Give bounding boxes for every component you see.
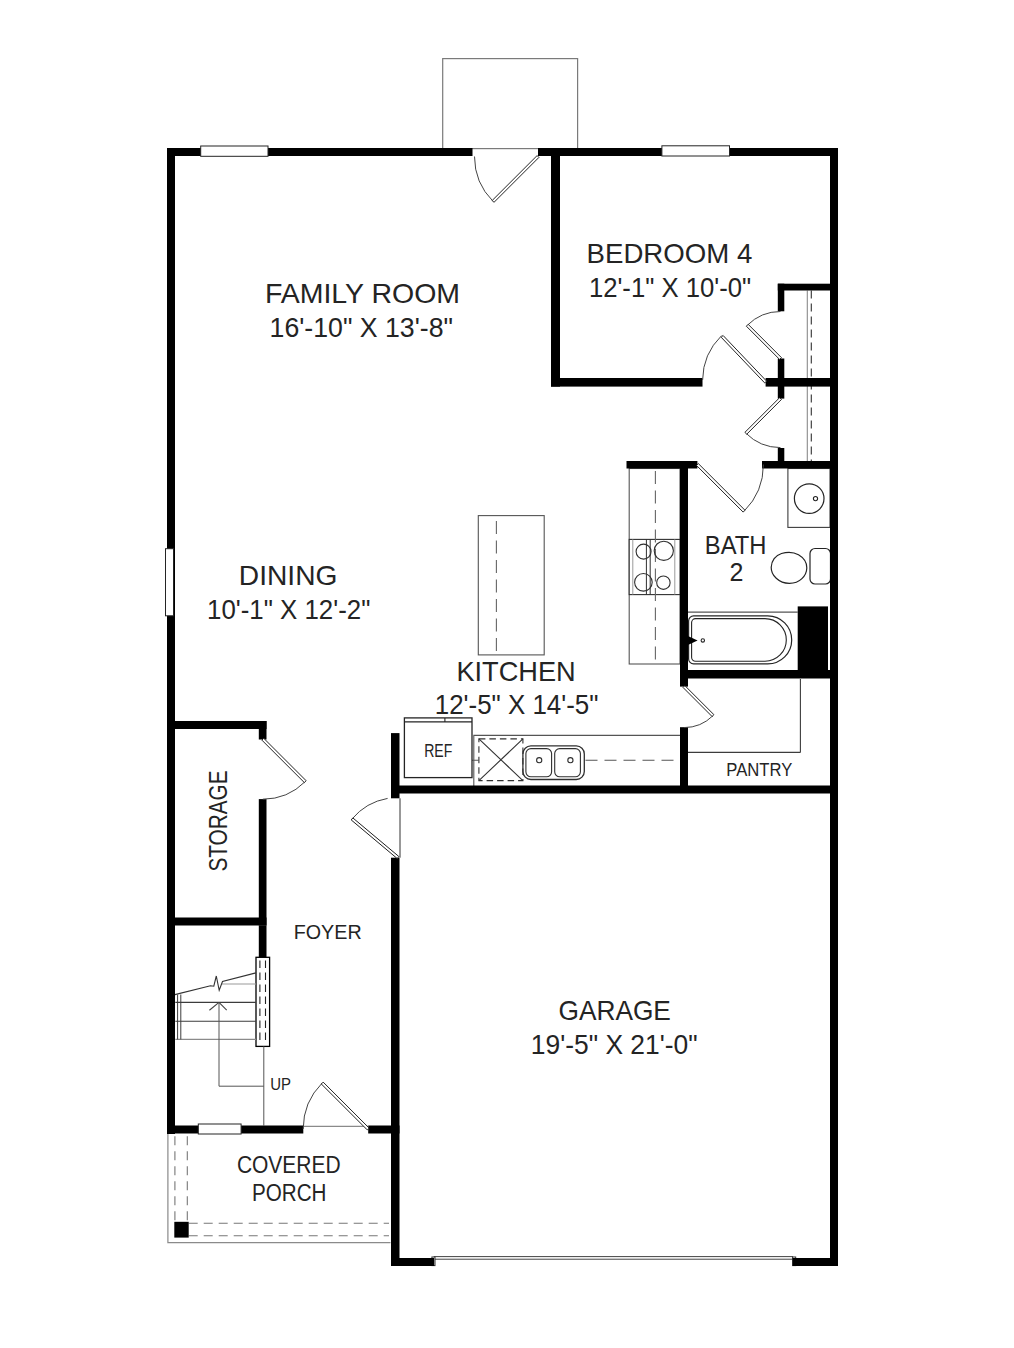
svg-text:FOYER: FOYER: [294, 921, 362, 943]
svg-text:BEDROOM 4: BEDROOM 4: [587, 238, 753, 269]
svg-text:REF: REF: [424, 740, 452, 761]
svg-text:10'-1" X 12'-2": 10'-1" X 12'-2": [207, 594, 370, 625]
svg-text:COVERED: COVERED: [237, 1152, 341, 1178]
svg-text:UP: UP: [270, 1075, 291, 1093]
svg-text:19'-5" X 21'-0": 19'-5" X 21'-0": [531, 1029, 698, 1060]
svg-text:2: 2: [729, 558, 743, 586]
svg-text:GARAGE: GARAGE: [559, 995, 671, 1026]
svg-text:BATH: BATH: [705, 531, 767, 559]
svg-text:PANTRY: PANTRY: [726, 759, 792, 780]
svg-text:12'-5" X 14'-5": 12'-5" X 14'-5": [435, 689, 599, 720]
svg-text:STORAGE: STORAGE: [204, 771, 232, 872]
svg-text:12'-1" X 10'-0": 12'-1" X 10'-0": [589, 272, 751, 303]
svg-text:PORCH: PORCH: [252, 1180, 327, 1206]
svg-text:FAMILY ROOM: FAMILY ROOM: [265, 278, 460, 309]
svg-text:16'-10" X 13'-8": 16'-10" X 13'-8": [270, 312, 453, 343]
svg-text:KITCHEN: KITCHEN: [456, 656, 575, 687]
svg-text:DINING: DINING: [239, 560, 338, 591]
